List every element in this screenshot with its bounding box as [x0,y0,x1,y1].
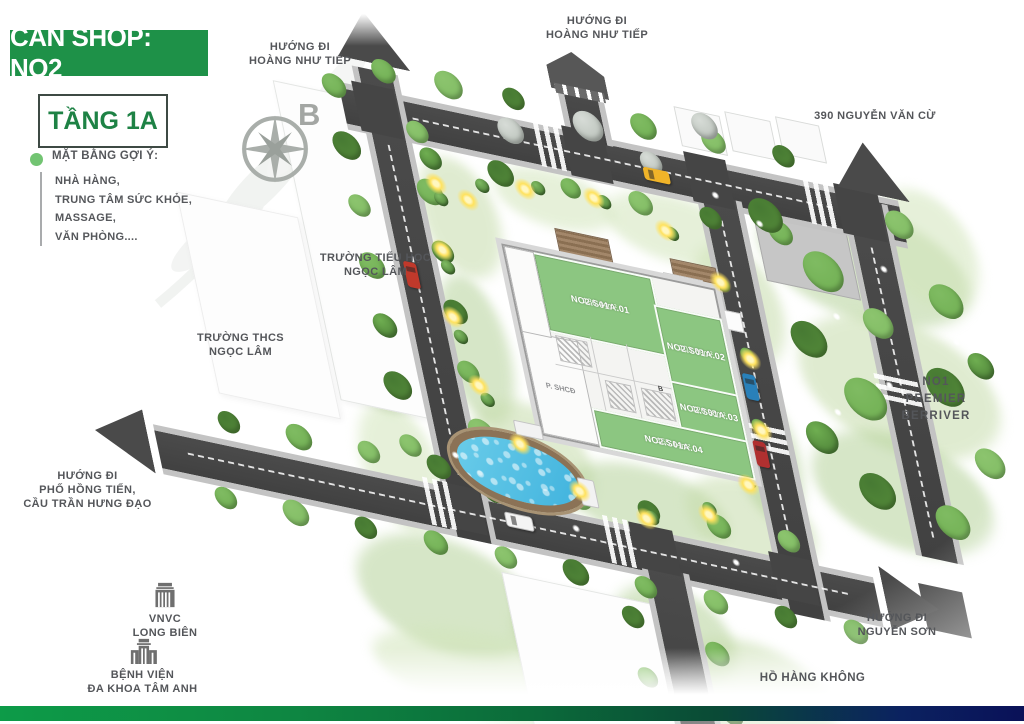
legend: MẶT BẰNG GỢI Ý: NHÀ HÀNG, TRUNG TÂM SỨC … [28,150,192,246]
landmark-line: ĐA KHOA TÂM ANH [60,682,225,696]
community-room-label: P. SHCĐ [545,380,576,395]
tree [216,409,243,436]
elevator-core [605,380,637,414]
floor-badge: TẦNG 1A [38,94,168,148]
landmark-line: VNVC [105,612,225,626]
hospital-icon [128,638,158,664]
direction-label-nguyen-son: HƯỚNG ĐI NGUYỄN SƠN [807,611,987,639]
landmark-no1-tower: NO1 PREMIER BERRIVER [866,374,1006,425]
street-label-390-nguyen-van-cu: 390 NGUYỄN VĂN CỪ [770,109,980,123]
legend-dot-icon [30,153,43,166]
site-plan-page: NO2.S01A.01 136.44m² NO2.S01A.02 103.89m… [0,0,1024,724]
legend-item: TRUNG TÂM SỨC KHỎE, [55,191,192,210]
tree [431,68,465,102]
compass-north-letter: B [298,97,320,133]
tree [628,111,660,143]
direction-line: HƯỚNG ĐI [205,40,395,54]
landmark-vnvc: VNVC LONG BIÊN [105,582,225,640]
direction-line: NGUYỄN SƠN [807,625,987,639]
direction-line: HOÀNG NHƯ TIẾP [205,54,395,68]
stair-core [641,388,677,422]
landmark-line: PREMIER [866,391,1006,408]
sparkle-light [952,337,962,347]
landmark-secondary-school: TRƯỜNG THCS NGỌC LÂM [148,331,333,359]
landmark-lake: HỒ HÀNG KHÔNG [735,671,890,685]
direction-line: HƯỚNG ĐI [0,469,180,483]
tree [803,418,842,457]
legend-items: NHÀ HÀNG, TRUNG TÂM SỨC KHỎE, MASSAGE, V… [40,172,192,246]
landmark-line: BỆNH VIỆN [60,668,225,682]
building-icon [150,582,180,608]
landmark-primary-school: TRƯỜNG TIỂU HỌC NGỌC LÂM [283,251,468,279]
tree [283,421,315,453]
tree [972,446,1008,482]
landmark-line: NO1 [866,374,1006,391]
direction-label-left: HƯỚNG ĐI PHỐ HỒNG TIẾN, CẦU TRẦN HƯNG ĐẠ… [0,469,180,511]
direction-line: HƯỚNG ĐI [807,611,987,625]
arrow-pho-hong-tien [88,398,156,473]
title-banner: CĂN SHOP: NO2 [10,30,208,76]
landmark-line: TRƯỜNG THCS [148,331,333,345]
direction-label-top-left: HƯỚNG ĐI HOÀNG NHƯ TIẾP [205,40,395,68]
tree [500,86,527,113]
legend-item: VĂN PHÒNG.... [55,228,192,247]
landmark-hospital: BỆNH VIỆN ĐA KHOA TÂM ANH [60,638,225,696]
landmark-line: TRƯỜNG TIỂU HỌC [283,251,468,265]
landmark-line: NGỌC LÂM [283,265,468,279]
landmark-line: BERRIVER [866,408,1006,425]
legend-item: NHÀ HÀNG, [55,172,192,191]
direction-line: CẦU TRẦN HƯNG ĐẠO [0,497,180,511]
direction-line: PHỐ HỒNG TIẾN, [0,483,180,497]
direction-line: HOÀNG NHƯ TIẾP [502,28,692,42]
legend-title: MẶT BẰNG GỢI Ý: [52,150,192,162]
footer-gradient-bar [0,706,1024,721]
direction-line: HƯỚNG ĐI [502,14,692,28]
landmark-line: NGỌC LÂM [148,345,333,359]
direction-label-top-center: HƯỚNG ĐI HOÀNG NHƯ TIẾP [502,14,692,42]
legend-item: MASSAGE, [55,209,192,228]
